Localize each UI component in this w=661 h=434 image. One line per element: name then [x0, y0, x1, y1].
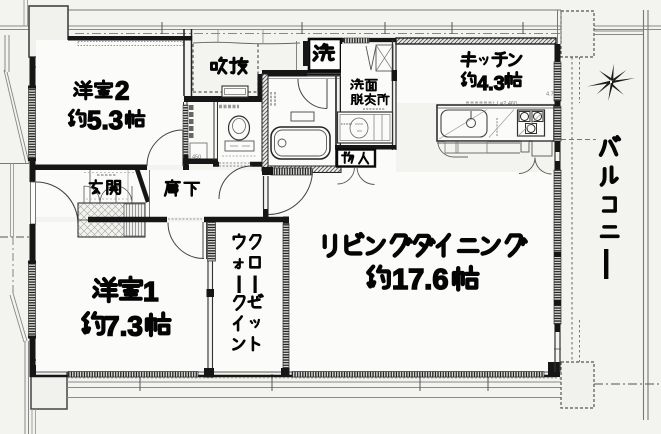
svg-text:4.3: 4.3	[477, 73, 505, 95]
svg-text:5.3: 5.3	[87, 105, 123, 135]
svg-text:L=2,460: L=2,460	[497, 101, 517, 107]
svg-text:17.6: 17.6	[392, 264, 448, 296]
svg-text:4.7: 4.7	[546, 92, 554, 98]
svg-text:450: 450	[192, 155, 201, 161]
svg-text:1: 1	[143, 276, 159, 307]
svg-text:7.3: 7.3	[104, 311, 143, 342]
svg-text:2: 2	[115, 76, 129, 106]
